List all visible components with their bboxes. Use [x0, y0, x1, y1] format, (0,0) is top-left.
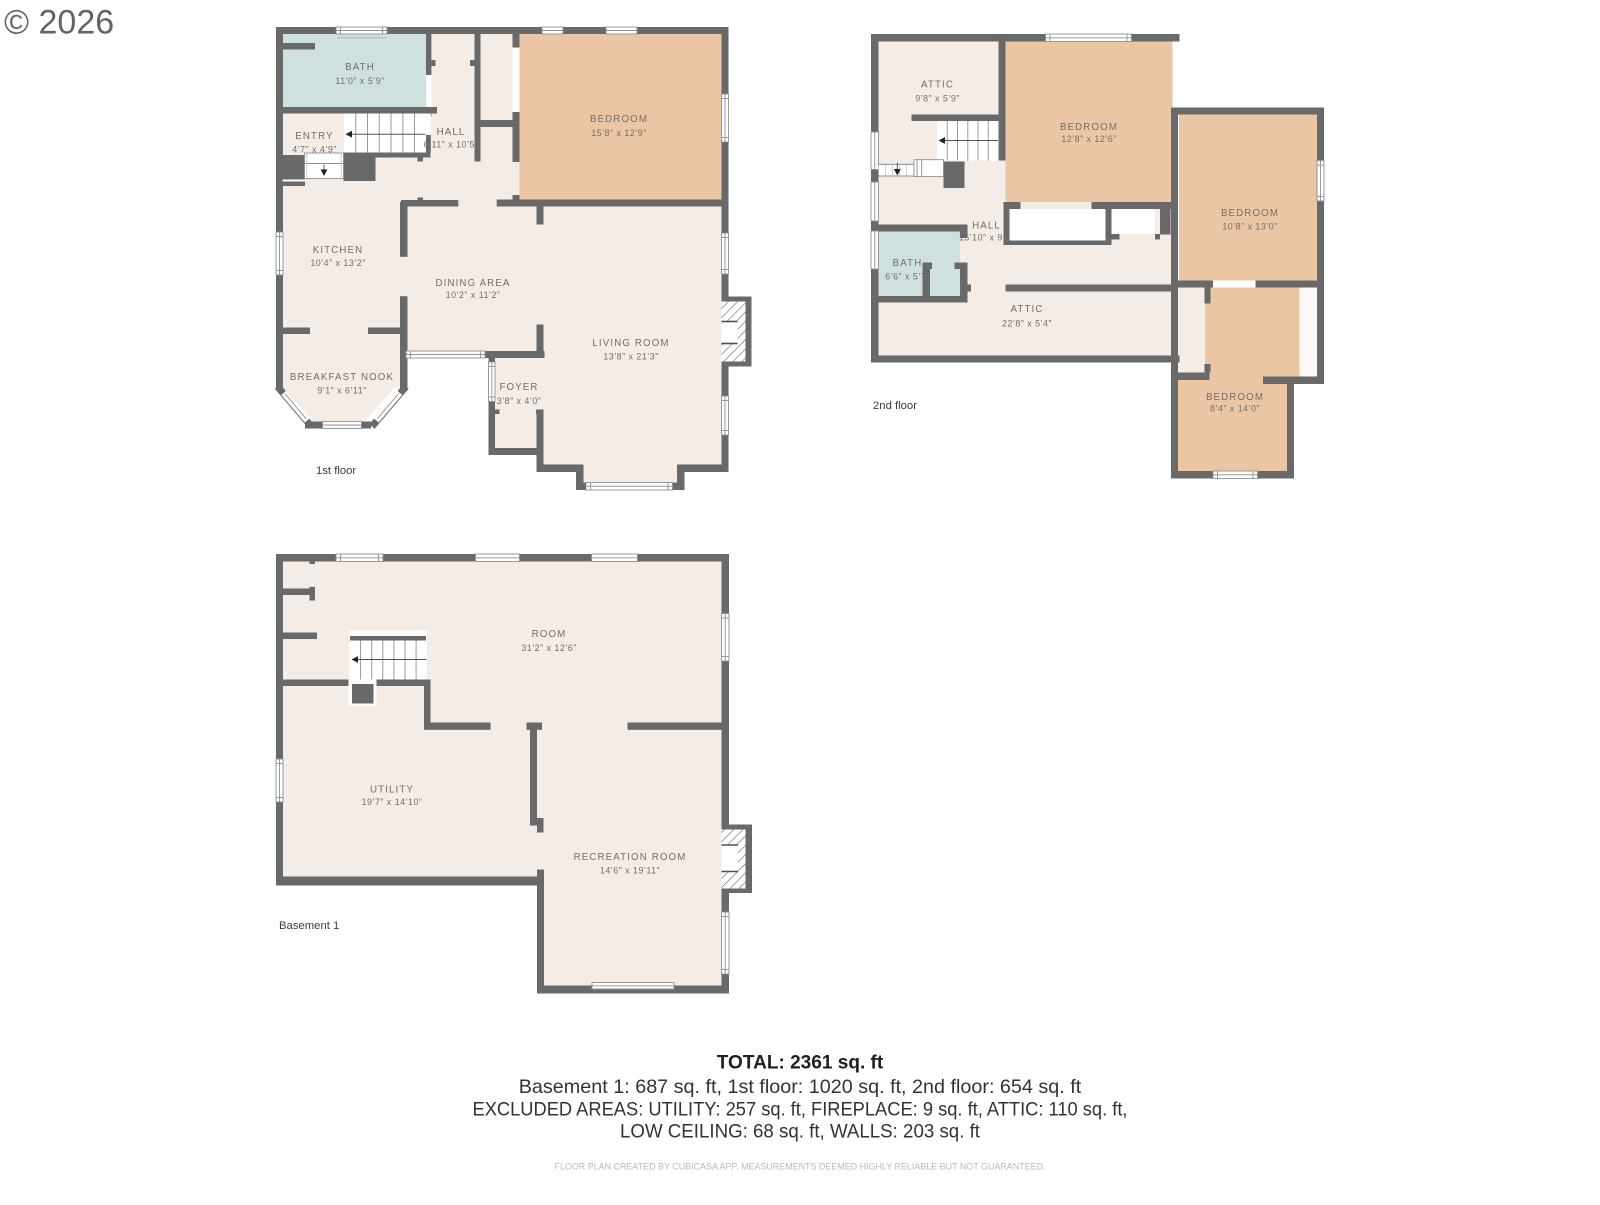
svg-text:15’8” x 12’9”: 15’8” x 12’9”: [591, 128, 646, 138]
svg-text:10’4” x 13’2”: 10’4” x 13’2”: [310, 258, 365, 268]
svg-text:LOW CEILING: 68 sq. ft, WALLS:: LOW CEILING: 68 sq. ft, WALLS: 203 sq. f…: [620, 1121, 981, 1143]
svg-text:1st floor: 1st floor: [316, 465, 356, 477]
svg-text:10’8” x 13’0”: 10’8” x 13’0”: [1222, 222, 1277, 232]
svg-text:UTILITY: UTILITY: [370, 785, 414, 796]
svg-text:Basement 1: 687 sq. ft, 1st fl: Basement 1: 687 sq. ft, 1st floor: 1020 …: [519, 1076, 1082, 1098]
svg-text:14’6” x 19’11”: 14’6” x 19’11”: [600, 866, 660, 876]
svg-text:BATH: BATH: [345, 62, 375, 73]
svg-text:19’7” x 14’10”: 19’7” x 14’10”: [362, 797, 423, 807]
svg-text:BATH: BATH: [893, 258, 923, 269]
svg-text:BREAKFAST NOOK: BREAKFAST NOOK: [290, 372, 394, 383]
svg-text:HALL: HALL: [972, 221, 1001, 232]
svg-text:© 2026: © 2026: [4, 4, 114, 42]
svg-text:HALL: HALL: [437, 127, 466, 138]
svg-text:ENTRY: ENTRY: [295, 131, 333, 142]
svg-text:6’11” x 10’5”: 6’11” x 10’5”: [424, 140, 479, 150]
svg-text:KITCHEN: KITCHEN: [313, 245, 364, 256]
svg-text:DINING AREA: DINING AREA: [435, 278, 510, 289]
svg-text:9’1” x 6’11”: 9’1” x 6’11”: [317, 386, 366, 396]
svg-text:ATTIC: ATTIC: [1010, 304, 1043, 315]
svg-text:13’8” x 21’3”: 13’8” x 21’3”: [603, 352, 658, 362]
svg-text:4’7” x 4’9”: 4’7” x 4’9”: [292, 145, 336, 155]
svg-text:BEDROOM: BEDROOM: [590, 114, 648, 125]
svg-text:FLOOR PLAN CREATED BY CUBICASA: FLOOR PLAN CREATED BY CUBICASA APP. MEAS…: [555, 1162, 1046, 1172]
svg-text:10’2” x 11’2”: 10’2” x 11’2”: [446, 290, 501, 300]
svg-text:9’8” x 5’9”: 9’8” x 5’9”: [915, 94, 959, 104]
svg-text:BEDROOM: BEDROOM: [1206, 392, 1264, 403]
svg-text:8’4” x 14’0”: 8’4” x 14’0”: [1210, 404, 1260, 414]
svg-text:22’8” x 5’4”: 22’8” x 5’4”: [1002, 319, 1052, 329]
svg-text:ATTIC: ATTIC: [921, 80, 954, 91]
svg-text:LIVING ROOM: LIVING ROOM: [592, 338, 669, 349]
svg-text:BEDROOM: BEDROOM: [1060, 122, 1118, 133]
svg-text:3’8” x 4’0”: 3’8” x 4’0”: [497, 396, 541, 406]
svg-text:TOTAL: 2361 sq. ft: TOTAL: 2361 sq. ft: [717, 1052, 884, 1074]
svg-text:12’8” x 12’6”: 12’8” x 12’6”: [1061, 134, 1116, 144]
svg-text:Basement 1: Basement 1: [279, 920, 339, 932]
svg-text:11’0” x 5’9”: 11’0” x 5’9”: [335, 76, 384, 86]
svg-text:ROOM: ROOM: [532, 629, 567, 640]
svg-text:2nd floor: 2nd floor: [873, 400, 917, 412]
svg-text:RECREATION ROOM: RECREATION ROOM: [574, 852, 687, 863]
svg-text:31’2” x 12’6”: 31’2” x 12’6”: [521, 643, 576, 653]
svg-text:BEDROOM: BEDROOM: [1221, 208, 1279, 219]
svg-text:EXCLUDED AREAS: UTILITY: 257 s: EXCLUDED AREAS: UTILITY: 257 sq. ft, FIR…: [473, 1098, 1128, 1120]
svg-text:FOYER: FOYER: [499, 382, 538, 393]
